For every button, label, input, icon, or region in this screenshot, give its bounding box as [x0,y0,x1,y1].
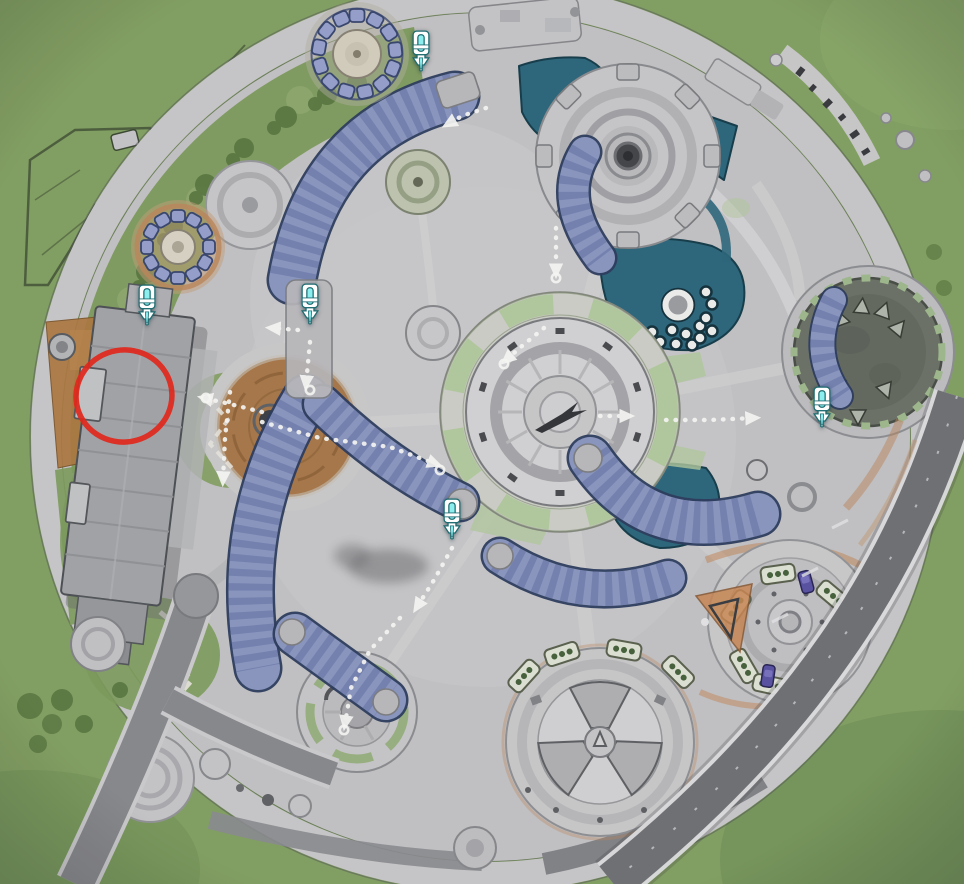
map-viewport[interactable] [0,0,964,884]
dim-overlay [0,0,964,884]
area-map[interactable] [0,0,964,884]
